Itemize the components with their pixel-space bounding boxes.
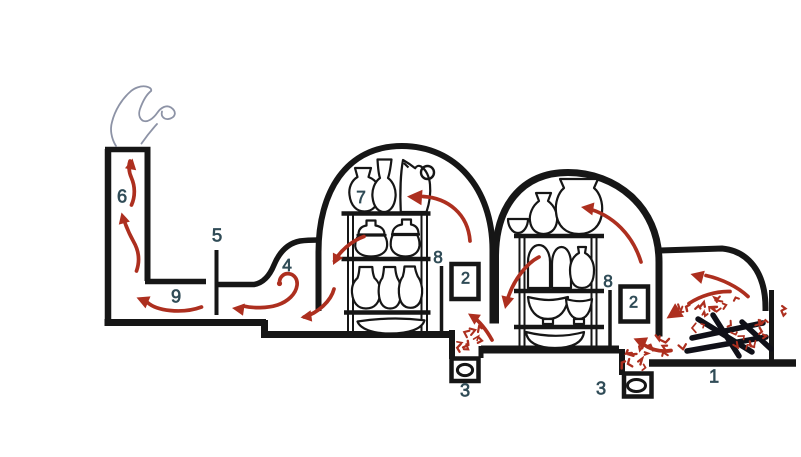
svg-text:2: 2 (629, 293, 638, 311)
svg-text:5: 5 (212, 225, 222, 246)
svg-text:3: 3 (596, 379, 606, 399)
svg-text:7: 7 (356, 187, 366, 207)
svg-text:3: 3 (460, 381, 470, 401)
svg-text:4: 4 (282, 255, 292, 275)
svg-text:6: 6 (117, 187, 127, 207)
svg-text:9: 9 (171, 287, 181, 307)
svg-text:8: 8 (433, 247, 443, 267)
svg-text:8: 8 (603, 271, 613, 291)
svg-text:1: 1 (709, 367, 719, 387)
svg-text:2: 2 (461, 269, 470, 287)
